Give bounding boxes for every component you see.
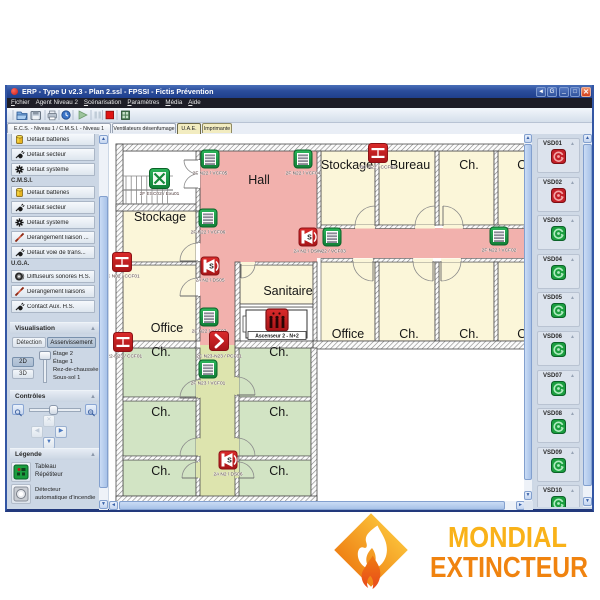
- svg-text:Ch.: Ch.: [517, 158, 524, 172]
- svg-text:3C N22 / CCF02: 3C N22 / CCF02: [360, 165, 396, 171]
- svg-text:Ch.: Ch.: [269, 405, 288, 419]
- svg-text:Ascenseur 2 - N+2: Ascenseur 2 - N+2: [255, 334, 299, 340]
- svg-text:N22 / VCF03: N22 / VCF03: [318, 249, 346, 255]
- svg-text:EXTINCTEUR: EXTINCTEUR: [430, 552, 588, 584]
- svg-text:Ch.: Ch.: [269, 345, 288, 359]
- svg-text:Ch.: Ch.: [151, 345, 170, 359]
- svg-text:2F N22 / VCF06: 2F N22 / VCF06: [191, 230, 226, 236]
- svg-text:Office: Office: [332, 327, 364, 341]
- svg-text:3C N02 / CCF01: 3C N02 / CCF01: [109, 274, 140, 280]
- svg-text:S: S: [307, 235, 312, 242]
- svg-text:Ch.: Ch.: [151, 405, 170, 419]
- svg-text:Ch.: Ch.: [269, 464, 288, 478]
- svg-text:2A N2 / DS06: 2A N2 / DS06: [213, 472, 242, 478]
- svg-text:Ch.: Ch.: [459, 158, 478, 172]
- svg-text:2F N22 / VCF04: 2F N22 / VCF04: [286, 171, 321, 177]
- svg-text:Stockage: Stockage: [134, 210, 186, 224]
- svg-text:N22-N23 / CCF01: N22-N23 / CCF01: [109, 354, 143, 360]
- svg-text:Office: Office: [151, 321, 183, 335]
- svg-text:2A N2 / DS05: 2A N2 / DS05: [195, 278, 224, 284]
- svg-text:Ch.: Ch.: [151, 464, 170, 478]
- svg-text:2F N22 / VCF05: 2F N22 / VCF05: [193, 171, 228, 177]
- svg-text:2F N22 / VCF02: 2F N22 / VCF02: [482, 248, 517, 254]
- svg-text:MONDIAL: MONDIAL: [448, 522, 567, 554]
- svg-text:2F ESC02 / Exu01: 2F ESC02 / Exu01: [140, 191, 180, 197]
- svg-text:2C N23-N23 / PCF01: 2C N23-N23 / PCF01: [196, 354, 242, 360]
- svg-text:S: S: [227, 458, 232, 465]
- svg-text:S: S: [209, 264, 214, 271]
- svg-text:2F N23 / VCF01: 2F N23 / VCF01: [191, 381, 226, 387]
- svg-text:Hall: Hall: [248, 173, 270, 187]
- svg-text:Sanitaire: Sanitaire: [263, 284, 312, 298]
- svg-text:Ch.: Ch.: [459, 327, 478, 341]
- svg-text:Ch.: Ch.: [517, 327, 524, 341]
- svg-text:Ch.: Ch.: [399, 327, 418, 341]
- svg-text:Bureau: Bureau: [390, 158, 430, 172]
